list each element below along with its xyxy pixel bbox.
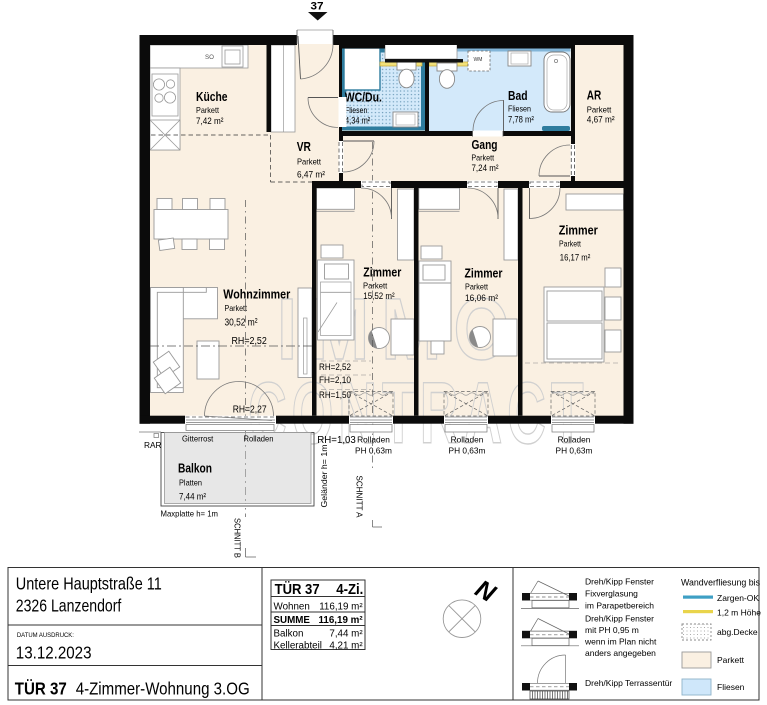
svg-text:Rolladen: Rolladen — [357, 435, 390, 445]
svg-text:Zargen-OK: Zargen-OK — [717, 593, 759, 603]
svg-text:FH=2,10: FH=2,10 — [319, 375, 351, 385]
svg-text:SO: SO — [205, 54, 214, 61]
svg-text:DATUM AUSDRUCK:: DATUM AUSDRUCK: — [17, 632, 74, 639]
svg-text:Küche: Küche — [196, 89, 228, 104]
svg-text:Rolladen: Rolladen — [244, 434, 274, 444]
svg-text:Parkett: Parkett — [363, 281, 388, 291]
svg-text:RAR: RAR — [144, 440, 162, 450]
svg-text:7,42 m²: 7,42 m² — [196, 116, 224, 127]
svg-text:Parkett: Parkett — [465, 282, 489, 292]
svg-text:Wohnen: Wohnen — [274, 602, 310, 613]
svg-text:Gitterrost: Gitterrost — [182, 434, 214, 444]
svg-text:Fliesen: Fliesen — [508, 103, 531, 113]
svg-text:16,17 m²: 16,17 m² — [560, 253, 591, 264]
svg-text:RH=2,52: RH=2,52 — [319, 362, 351, 372]
svg-text:RH=2,52: RH=2,52 — [232, 336, 268, 347]
svg-text:Parkett: Parkett — [471, 153, 494, 163]
svg-text:AR: AR — [587, 88, 602, 103]
svg-text:TÜR 37: TÜR 37 — [15, 679, 67, 699]
svg-text:VR: VR — [297, 139, 312, 154]
svg-text:Parkett: Parkett — [297, 157, 322, 167]
svg-text:PH 0,63m: PH 0,63m — [556, 446, 593, 456]
svg-text:Dreh/Kipp Fenster: Dreh/Kipp Fenster — [585, 614, 654, 624]
svg-text:7,78 m²: 7,78 m² — [508, 115, 534, 126]
svg-text:Gang: Gang — [472, 137, 498, 152]
svg-text:116,19 m²: 116,19 m² — [318, 615, 363, 626]
svg-text:SCHNITT A: SCHNITT A — [355, 476, 365, 518]
svg-text:WC/Du.: WC/Du. — [345, 90, 382, 104]
svg-text:16,06 m²: 16,06 m² — [465, 293, 498, 304]
svg-text:Zimmer: Zimmer — [363, 264, 401, 279]
svg-text:Fixverglasung: Fixverglasung — [585, 589, 638, 599]
svg-text:Dreh/Kipp Terrassentür: Dreh/Kipp Terrassentür — [585, 678, 672, 688]
svg-text:Geländer h= 1m: Geländer h= 1m — [319, 444, 329, 507]
svg-text:13.12.2023: 13.12.2023 — [16, 643, 92, 663]
svg-text:7,44 m²: 7,44 m² — [179, 492, 206, 503]
svg-text:2326 Lanzendorf: 2326 Lanzendorf — [16, 596, 122, 616]
svg-text:TÜR 37: TÜR 37 — [275, 581, 320, 598]
svg-text:Parkett: Parkett — [559, 239, 582, 249]
svg-text:Rolladen: Rolladen — [558, 435, 591, 445]
svg-text:Kellerabteil: Kellerabteil — [274, 640, 322, 651]
svg-text:6,47 m²: 6,47 m² — [297, 170, 325, 181]
svg-text:7,44 m²: 7,44 m² — [329, 629, 363, 640]
svg-text:PH 0,63m: PH 0,63m — [449, 446, 486, 456]
svg-text:37: 37 — [311, 1, 324, 13]
svg-text:Wohnzimmer: Wohnzimmer — [223, 287, 290, 302]
svg-text:Platten: Platten — [179, 478, 202, 488]
svg-text:Zimmer: Zimmer — [559, 222, 598, 237]
svg-text:Balkon: Balkon — [178, 462, 212, 476]
svg-text:Parkett: Parkett — [717, 655, 745, 665]
svg-text:RH=2,27: RH=2,27 — [233, 405, 267, 416]
svg-text:15,52 m²: 15,52 m² — [363, 291, 394, 302]
svg-text:Wandverfliesung bis: Wandverfliesung bis — [681, 578, 761, 588]
svg-text:Maxplatte h= 1m: Maxplatte h= 1m — [161, 509, 219, 519]
svg-text:4,21 m²: 4,21 m² — [329, 640, 363, 651]
svg-text:Parkett: Parkett — [225, 303, 248, 313]
svg-text:Zimmer: Zimmer — [465, 266, 503, 281]
svg-text:abg.Decke: abg.Decke — [717, 627, 758, 637]
svg-text:RH=1,50: RH=1,50 — [319, 390, 351, 400]
svg-text:1,2 m Höhe: 1,2 m Höhe — [717, 608, 761, 618]
svg-text:wenn im Plan nicht: wenn im Plan nicht — [584, 637, 657, 647]
svg-text:Fliesen: Fliesen — [345, 105, 368, 115]
svg-text:SUMME: SUMME — [274, 615, 311, 626]
svg-text:Untere Hauptstraße 11: Untere Hauptstraße 11 — [16, 574, 162, 594]
svg-text:RH=1,03: RH=1,03 — [317, 435, 356, 446]
svg-text:SCHNITT B: SCHNITT B — [233, 518, 243, 558]
svg-text:116,19 m²: 116,19 m² — [319, 602, 363, 613]
svg-text:30,52 m²: 30,52 m² — [225, 317, 258, 329]
svg-text:Balkon: Balkon — [274, 629, 304, 640]
svg-text:Bad: Bad — [508, 88, 528, 103]
svg-text:Fliesen: Fliesen — [717, 682, 745, 692]
svg-text:mit PH 0,95 m: mit PH 0,95 m — [585, 625, 639, 635]
svg-text:Parkett: Parkett — [196, 105, 220, 115]
svg-text:Parkett: Parkett — [587, 104, 612, 114]
svg-text:7,24 m²: 7,24 m² — [472, 163, 499, 174]
svg-text:WM: WM — [474, 57, 483, 63]
svg-text:Dreh/Kipp Fenster: Dreh/Kipp Fenster — [585, 577, 654, 587]
svg-text:im Parapetbereich: im Parapetbereich — [585, 601, 654, 611]
svg-text:anders angegeben: anders angegeben — [585, 648, 656, 658]
svg-text:PH 0,63m: PH 0,63m — [355, 446, 392, 456]
svg-text:4-Zi.: 4-Zi. — [336, 582, 363, 598]
svg-text:Rolladen: Rolladen — [451, 435, 484, 445]
svg-text:4,34 m²: 4,34 m² — [345, 116, 370, 127]
svg-text:4-Zimmer-Wohnung 3.OG: 4-Zimmer-Wohnung 3.OG — [76, 679, 250, 699]
svg-text:4,67 m²: 4,67 m² — [587, 115, 615, 126]
